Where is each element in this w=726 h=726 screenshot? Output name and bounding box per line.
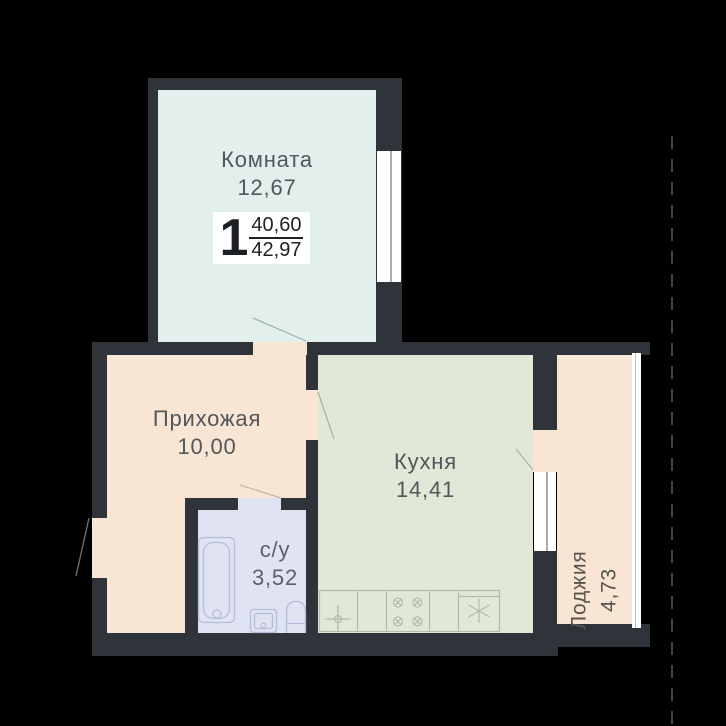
floor-plan: Комната 12,67 Прихожая 10,00 Кухня 14,41… <box>0 0 726 726</box>
fridge-icon <box>469 599 490 623</box>
sink-icon <box>251 610 277 633</box>
kitchen-sink-icon <box>325 605 351 632</box>
door-swing-line <box>516 449 533 470</box>
door-swing-line <box>318 392 334 439</box>
toilet-icon <box>287 602 306 634</box>
door-swing-line <box>253 318 306 341</box>
door-swing-line <box>240 485 281 498</box>
plan-linework <box>0 0 726 726</box>
stove-burners-icon <box>394 598 423 626</box>
kitchen-counter <box>320 591 500 632</box>
bathtub-icon <box>199 538 235 623</box>
door-swing-line <box>76 518 89 576</box>
